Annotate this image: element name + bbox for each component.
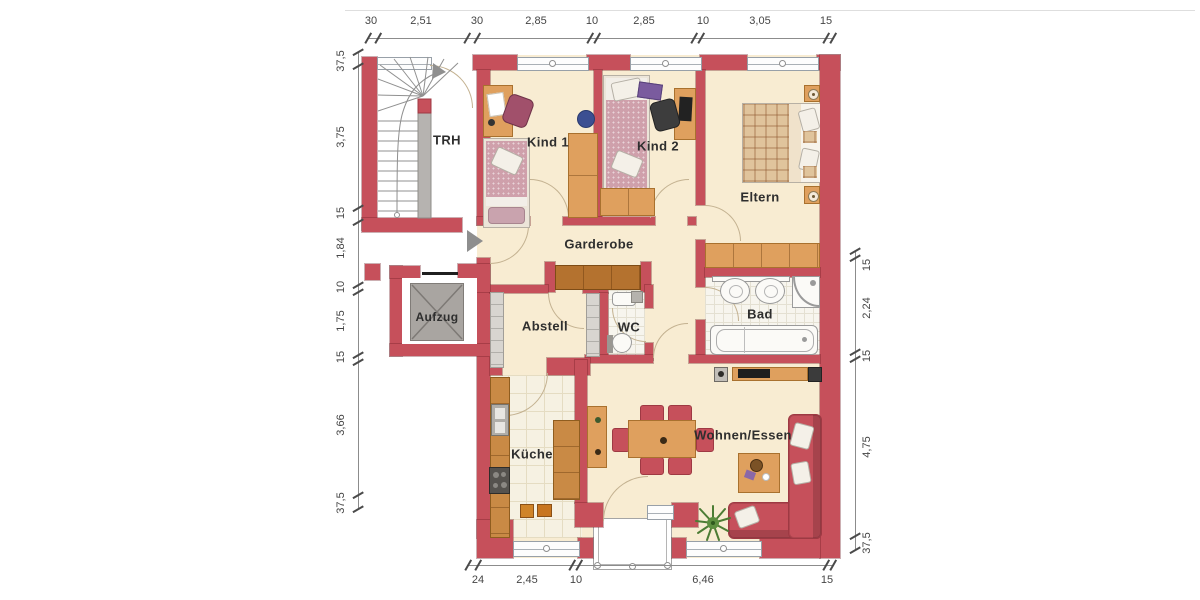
dining-table: [628, 420, 696, 458]
washbasin-bad: [720, 278, 750, 304]
wall: [473, 55, 517, 70]
wardrobe-kind1: [568, 133, 598, 218]
room-label-abstell: Abstell: [522, 319, 568, 334]
bathtub-bad: [710, 325, 818, 355]
wall: [689, 355, 820, 363]
wall: [820, 55, 840, 558]
shower-bad: [792, 276, 820, 308]
tv: [738, 369, 770, 378]
wall: [672, 538, 686, 558]
washbasin-bad: [755, 278, 785, 304]
window-node: [662, 60, 669, 67]
sideboard-kind2: [600, 188, 655, 216]
wall: [390, 266, 402, 356]
cabinet-wc: [631, 291, 643, 303]
wall: [696, 70, 705, 205]
room-label-wc: WC: [618, 320, 640, 335]
elevator-door-line: [422, 272, 458, 275]
coffee-table: [738, 453, 780, 493]
room-label-wohnen: Wohnen/Essen: [694, 428, 792, 443]
bed-kind1: [483, 138, 530, 228]
speaker-box: [714, 367, 728, 382]
rug-kind2: [637, 81, 663, 100]
wall: [390, 266, 420, 278]
bed-eltern: [742, 103, 820, 183]
room-label-eltern: Eltern: [740, 190, 779, 205]
shelf-abstell: [586, 293, 600, 357]
room-label-kind2: Kind 2: [637, 139, 679, 154]
wall: [696, 320, 705, 360]
island-kueche: [553, 420, 580, 500]
dining-chair: [640, 457, 664, 475]
sideboard-wohnen: [587, 406, 607, 468]
room-label-trh: TRH: [433, 133, 461, 148]
wardrobe-garderobe: [555, 265, 641, 290]
wardrobe-eltern: [705, 243, 820, 268]
wall: [700, 55, 747, 70]
wall: [477, 258, 490, 538]
tv-lowboard: [732, 367, 808, 381]
porch-railing: [598, 519, 667, 565]
sofa-pillow: [790, 461, 812, 486]
wall: [760, 538, 820, 558]
cabinet-wohnen: [808, 367, 822, 382]
room-label-kueche: Küche: [511, 447, 553, 462]
floor-plan: TRH Aufzug Kind 1 Kind 2 Eltern Garderob…: [0, 0, 1200, 600]
window-node: [543, 545, 550, 552]
wall: [390, 344, 490, 356]
room-label-bad: Bad: [747, 307, 773, 322]
window-node: [720, 545, 727, 552]
stove-kueche: [489, 467, 510, 494]
counter-kueche: [490, 377, 510, 538]
beanbag-kind1: [577, 110, 595, 128]
dining-chair: [668, 457, 692, 475]
nightstand-eltern: [804, 186, 820, 204]
shelf-abstell: [490, 292, 504, 368]
plant: [694, 504, 732, 542]
wall: [575, 503, 603, 527]
wall: [563, 217, 655, 225]
room-label-aufzug: Aufzug: [415, 310, 458, 324]
nightstand-eltern: [804, 85, 820, 102]
page-border-line: [345, 10, 1195, 11]
wall: [587, 55, 630, 70]
wall: [645, 285, 653, 308]
wall: [696, 240, 705, 287]
wall: [688, 217, 696, 225]
room-label-kind1: Kind 1: [527, 135, 569, 150]
room-label-garderobe: Garderobe: [564, 237, 633, 252]
wall: [365, 264, 380, 280]
mat-kueche: [537, 504, 552, 517]
mat-kueche: [520, 504, 534, 518]
window-node: [549, 60, 556, 67]
sink-kueche: [491, 404, 509, 436]
wall: [578, 538, 593, 558]
window-node: [779, 60, 786, 67]
window: [647, 505, 674, 520]
